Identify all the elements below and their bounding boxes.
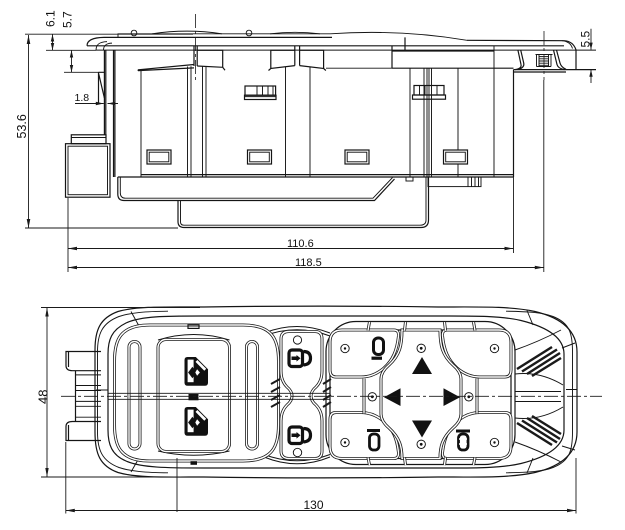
- svg-text:110.6: 110.6: [287, 238, 314, 250]
- svg-text:5.7: 5.7: [61, 11, 75, 28]
- svg-text:6.1: 6.1: [44, 10, 58, 27]
- svg-text:1.8: 1.8: [75, 92, 90, 104]
- svg-text:5.5: 5.5: [579, 30, 593, 47]
- svg-text:118.5: 118.5: [295, 257, 322, 269]
- svg-text:130: 130: [304, 498, 324, 512]
- svg-text:53.6: 53.6: [15, 114, 29, 138]
- svg-text:48: 48: [36, 390, 51, 404]
